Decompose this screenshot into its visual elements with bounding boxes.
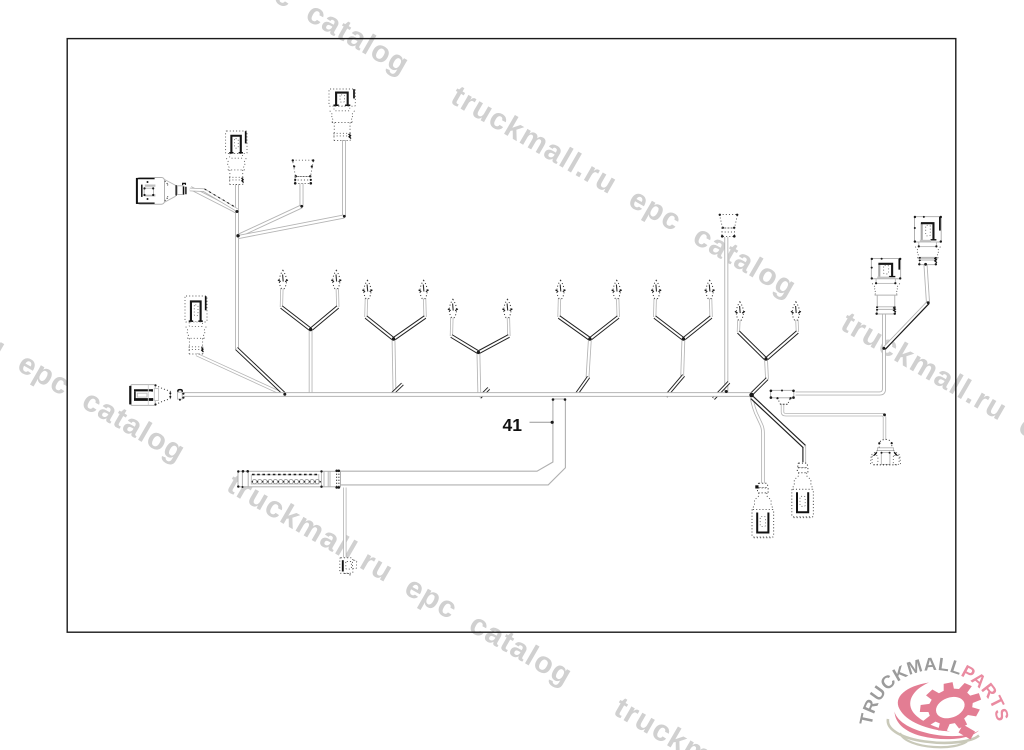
svg-text:41: 41 bbox=[503, 415, 523, 435]
